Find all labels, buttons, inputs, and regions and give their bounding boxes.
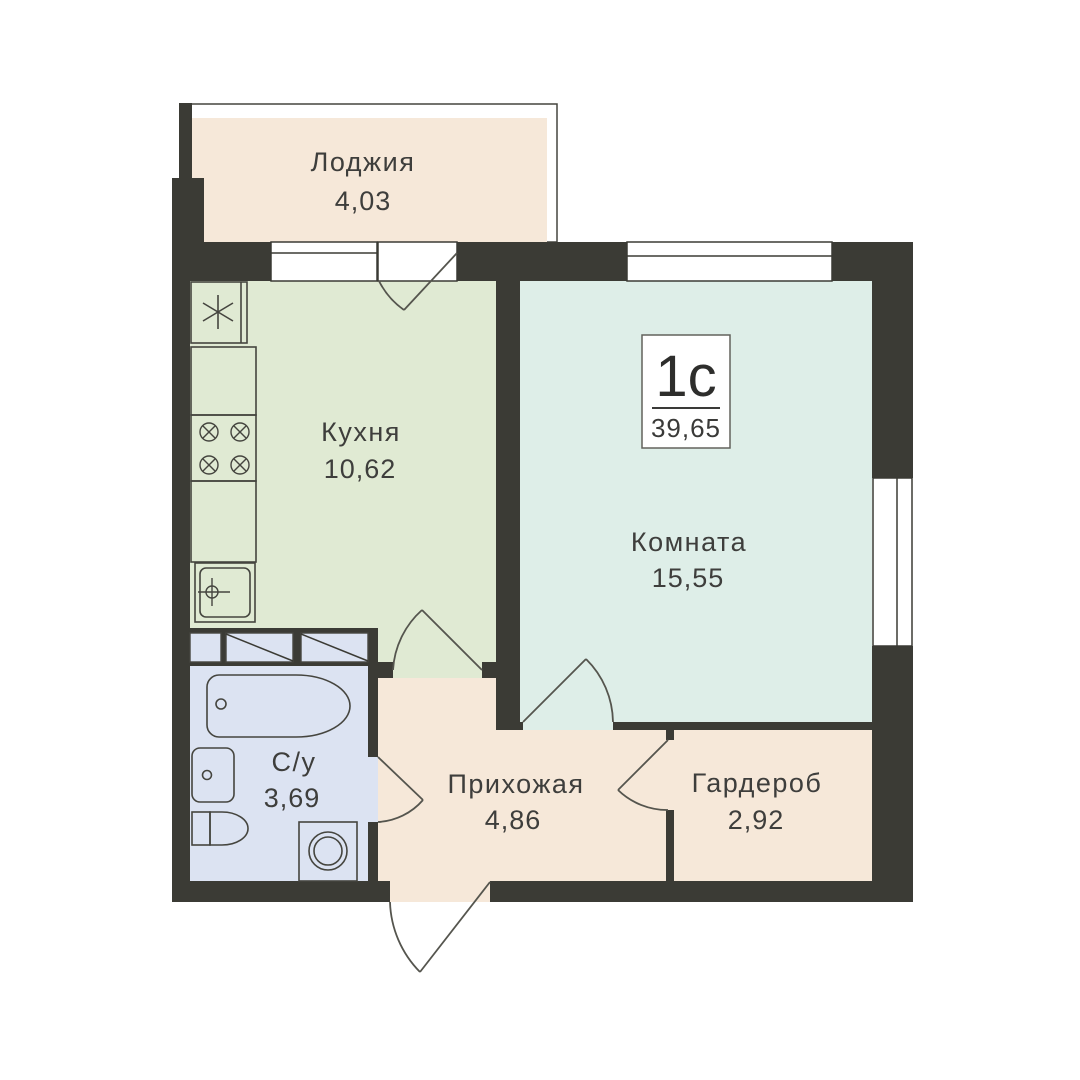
window-living-room-top xyxy=(627,242,832,281)
balcony-door-opening xyxy=(378,242,457,281)
floor-loggia xyxy=(192,118,547,242)
label-kitchen-area: 10,62 xyxy=(324,454,397,484)
label-wardrobe-area: 2,92 xyxy=(728,805,785,835)
window-kitchen xyxy=(271,242,377,281)
label-living-room-name: Комната xyxy=(631,527,747,557)
label-loggia-area: 4,03 xyxy=(335,186,392,216)
floor-plan-svg: 1с 39,65 Лоджия 4,03 Кухня 10,62 Комната… xyxy=(0,0,1080,1080)
label-loggia-name: Лоджия xyxy=(311,147,416,177)
badge-total-area: 39,65 xyxy=(651,413,721,443)
label-hallway-area: 4,86 xyxy=(485,805,542,835)
floor-plan-page: 1с 39,65 Лоджия 4,03 Кухня 10,62 Комната… xyxy=(0,0,1080,1080)
label-living-room-area: 15,55 xyxy=(652,563,725,593)
window-living-room-right xyxy=(873,478,912,646)
label-hallway-name: Прихожая xyxy=(447,769,584,799)
apartment-badge: 1с 39,65 xyxy=(642,335,730,448)
badge-apartment-type: 1с xyxy=(655,344,716,409)
label-wardrobe-name: Гардероб xyxy=(692,768,823,798)
label-bathroom-name: С/у xyxy=(272,747,317,777)
label-bathroom-area: 3,69 xyxy=(264,783,321,813)
label-kitchen-name: Кухня xyxy=(321,417,401,447)
ventilation-ducts xyxy=(190,633,368,662)
